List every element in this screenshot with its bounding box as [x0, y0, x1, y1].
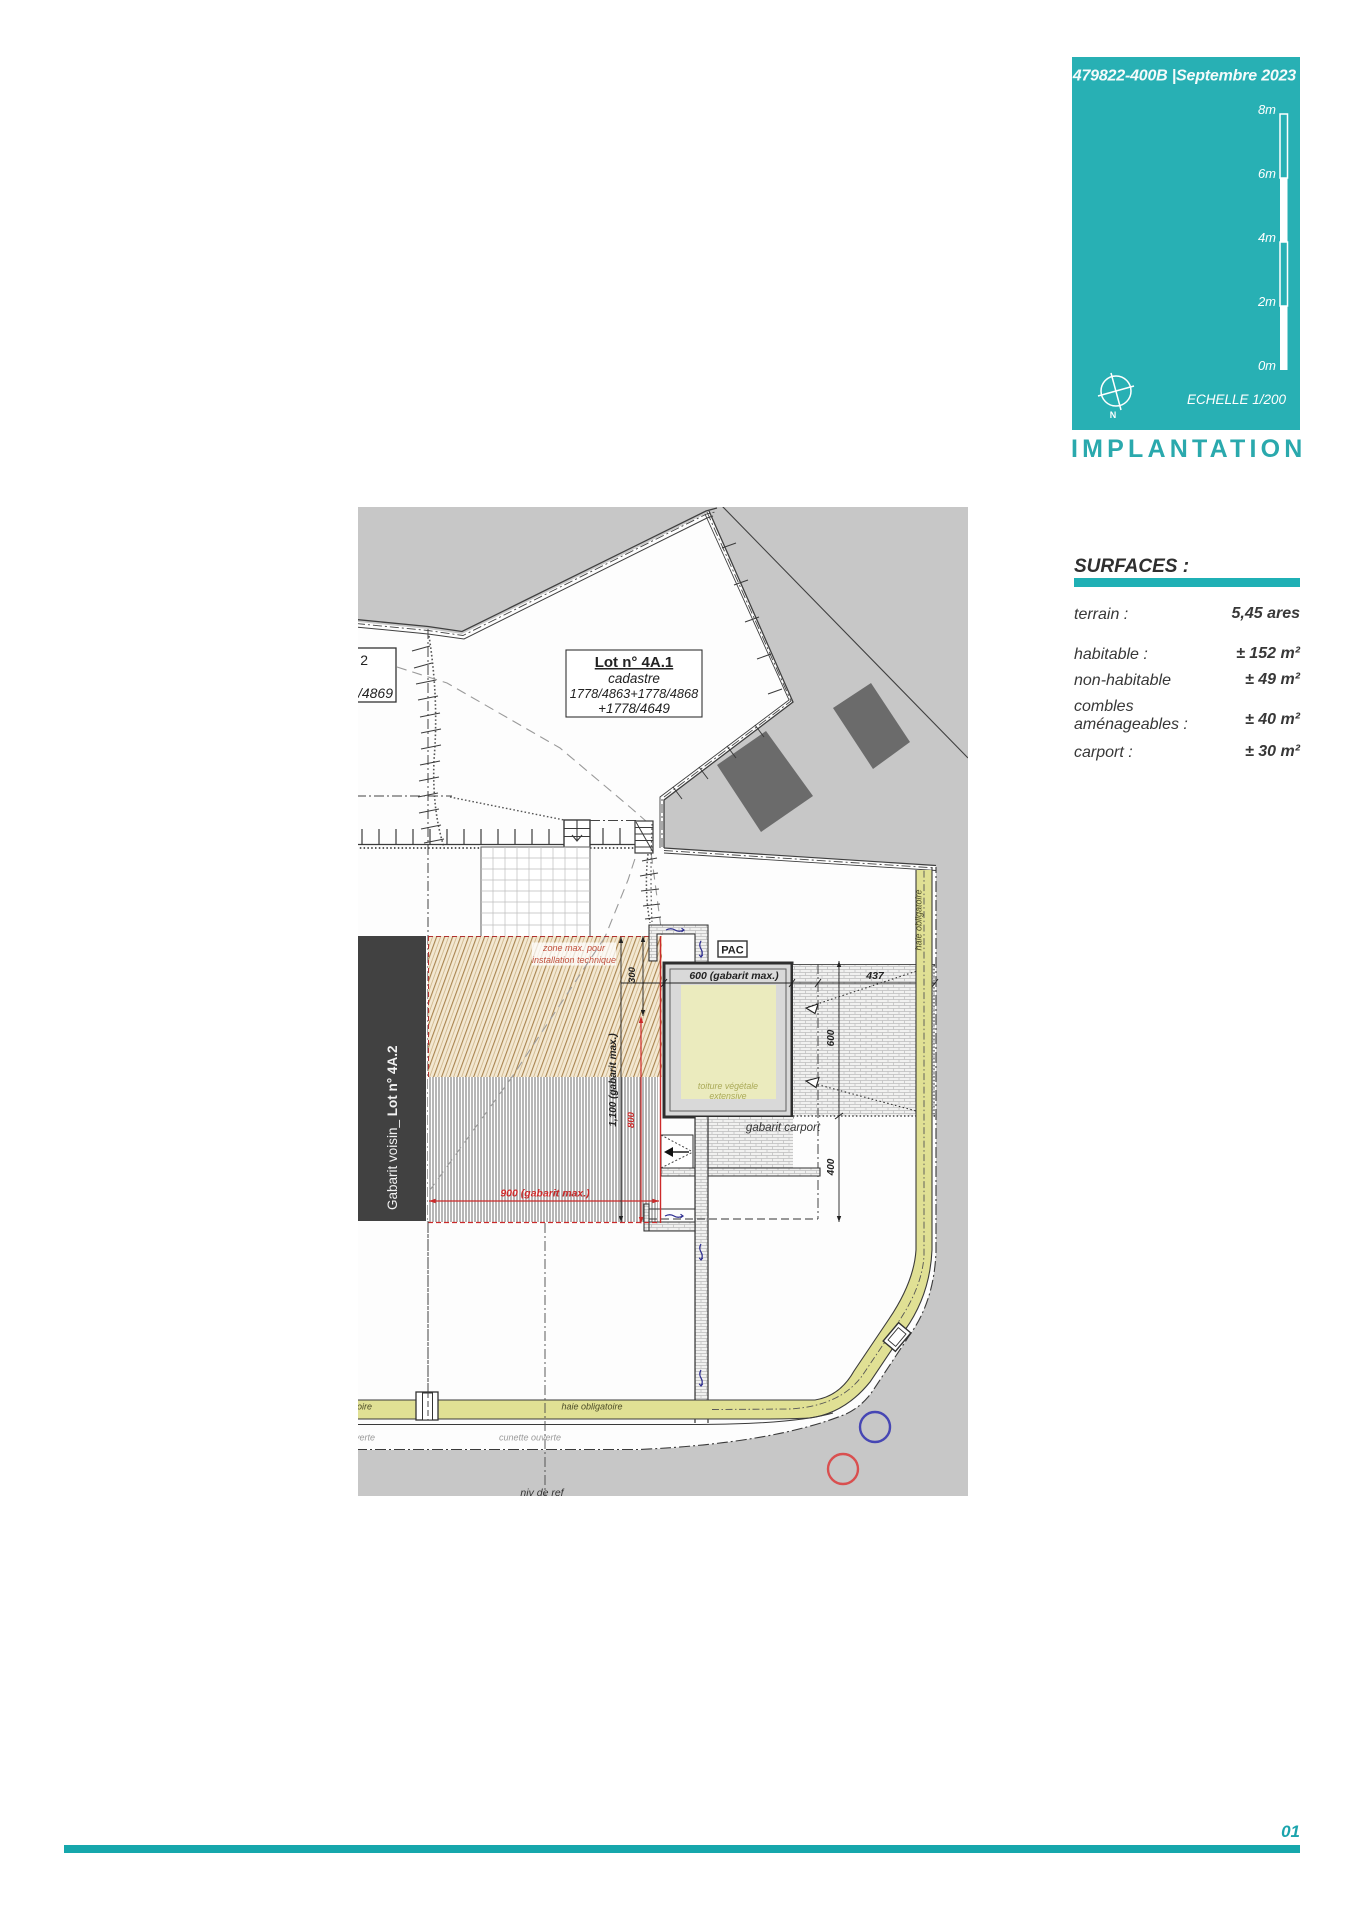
svg-text:cadastre: cadastre: [608, 671, 660, 686]
svg-text:cunette ouverte: cunette ouverte: [499, 1433, 561, 1443]
svg-text:extensive: extensive: [709, 1091, 746, 1101]
svg-text:zone max. pour: zone max. pour: [542, 943, 606, 953]
svg-text:gabarit carport: gabarit carport: [746, 1122, 821, 1134]
svg-text:600 (gabarit max.): 600 (gabarit max.): [689, 970, 779, 982]
svg-text:2: 2: [360, 652, 368, 668]
svg-text:toiture végétale: toiture végétale: [698, 1081, 758, 1091]
svg-text:niv de ref: niv de ref: [520, 1487, 564, 1499]
svg-text:cunette ouverte: cunette ouverte: [313, 1433, 375, 1443]
svg-text:400: 400: [826, 1158, 837, 1176]
svg-text:/4869: /4869: [357, 685, 393, 701]
svg-text:600: 600: [826, 1029, 837, 1046]
svg-text:+1778/4649: +1778/4649: [598, 701, 670, 716]
svg-text:437: 437: [865, 970, 885, 982]
svg-text:haie obligatoire: haie obligatoire: [311, 1402, 372, 1412]
svg-text:haie obligatoire: haie obligatoire: [914, 889, 924, 950]
svg-text:Gabarit voisin_ Lot n° 4A.2: Gabarit voisin_ Lot n° 4A.2: [385, 1046, 400, 1210]
svg-text:PAC: PAC: [721, 945, 743, 957]
svg-text:300: 300: [627, 966, 638, 983]
svg-text:haie obligatoire: haie obligatoire: [561, 1402, 622, 1412]
svg-text:1778/4863+1778/4868: 1778/4863+1778/4868: [570, 686, 699, 701]
svg-text:1,100 (gabarit max.): 1,100 (gabarit max.): [608, 1033, 619, 1127]
svg-text:installation technique: installation technique: [532, 955, 616, 965]
svg-text:900 (gabarit max.): 900 (gabarit max.): [500, 1188, 590, 1200]
svg-text:Lot n° 4A.1: Lot n° 4A.1: [595, 654, 674, 671]
svg-text:800: 800: [626, 1111, 637, 1128]
